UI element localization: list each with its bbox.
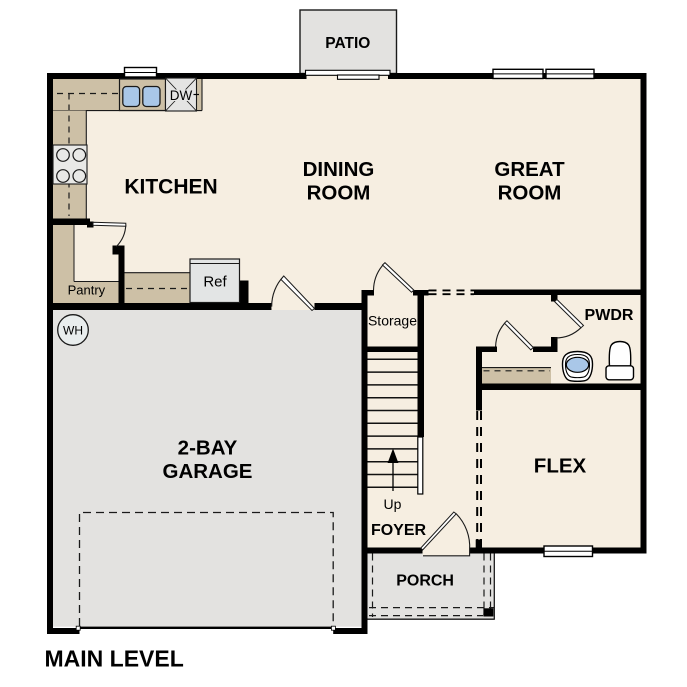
svg-text:DINING: DINING: [303, 158, 375, 181]
svg-text:FLEX: FLEX: [534, 455, 587, 478]
svg-text:ROOM: ROOM: [498, 182, 562, 205]
svg-text:Pantry: Pantry: [68, 283, 106, 298]
svg-text:WH: WH: [63, 323, 83, 337]
svg-text:PWDR: PWDR: [585, 307, 634, 324]
svg-text:GARAGE: GARAGE: [163, 460, 253, 483]
svg-text:ROOM: ROOM: [307, 182, 371, 205]
svg-text:FOYER: FOYER: [371, 522, 427, 539]
svg-text:Storage: Storage: [368, 313, 417, 329]
svg-text:MAIN LEVEL: MAIN LEVEL: [45, 645, 184, 671]
svg-text:DW: DW: [170, 88, 193, 103]
svg-text:KITCHEN: KITCHEN: [124, 176, 217, 199]
svg-text:2-BAY: 2-BAY: [178, 437, 238, 460]
svg-text:PORCH: PORCH: [396, 572, 454, 589]
svg-text:Up: Up: [384, 496, 402, 512]
svg-text:Ref: Ref: [203, 274, 227, 291]
svg-text:GREAT: GREAT: [494, 158, 565, 181]
svg-text:PATIO: PATIO: [325, 35, 370, 52]
